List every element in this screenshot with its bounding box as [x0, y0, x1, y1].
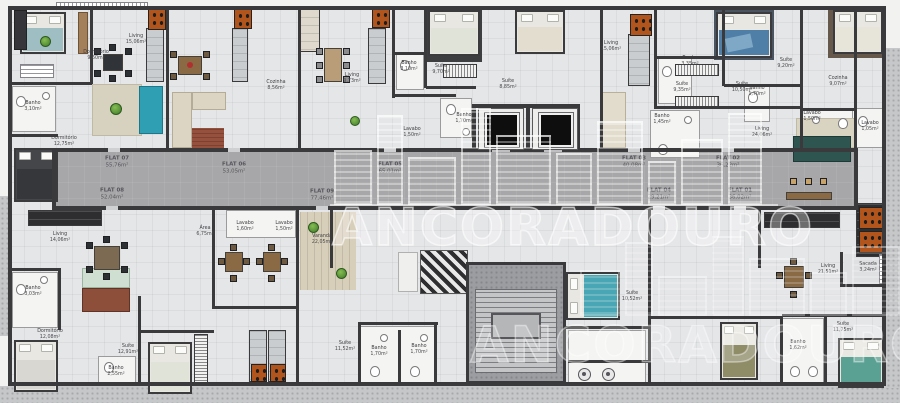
wall [650, 316, 782, 319]
room-label: Suíte8,85m² [499, 79, 516, 91]
dining-set [776, 258, 812, 298]
wall [722, 10, 725, 86]
door-opening [384, 148, 396, 152]
bed-teal-green [838, 338, 884, 388]
room-label: Suíte9,70m² [432, 64, 449, 76]
wall [840, 284, 886, 287]
room-label: Living14,06m² [50, 232, 70, 244]
flat-label: FLAT 0852,04m² [100, 187, 124, 201]
sink-icon [42, 92, 50, 100]
room-label: Banho1,70m² [748, 86, 765, 98]
dining-set [84, 236, 130, 280]
bed [428, 10, 480, 56]
wall [824, 316, 827, 384]
room-label: Lavabo1,50m² [803, 111, 820, 123]
wall [296, 210, 299, 384]
room-label: Lavabo1,05m² [861, 121, 878, 133]
sofa-beige [172, 92, 192, 148]
sink-icon [462, 128, 470, 136]
door-opening [228, 148, 240, 152]
room-label: Banho1,70m² [455, 113, 472, 125]
grille [20, 64, 54, 78]
flat-label: FLAT 0340,08m² [622, 155, 646, 169]
room-label: Dormitório9,60m² [83, 50, 109, 62]
flat-label: FLAT 0977,46m² [310, 188, 334, 202]
wardrobe [78, 12, 88, 54]
dining-set [786, 176, 834, 202]
sink-icon [380, 334, 388, 342]
room-label: Living9,73m² [343, 73, 360, 85]
cooktop-icon [148, 8, 166, 30]
wall [758, 210, 761, 268]
flat-label: FLAT 0653,05m² [222, 161, 246, 175]
bed [833, 10, 883, 54]
sidewalk [886, 48, 900, 388]
washer-icon [602, 368, 615, 381]
floor-plan: FLAT 0755,76m² FLAT 0653,05m² FLAT 0565,… [0, 0, 900, 403]
sofa-beige [192, 92, 226, 110]
wall [780, 316, 783, 384]
elevator [532, 108, 578, 150]
cooktop-icon [372, 8, 390, 28]
wall [138, 296, 141, 384]
kitchen-counter [28, 210, 102, 226]
elevator-shaft-wall [472, 104, 476, 150]
washer-icon [578, 368, 591, 381]
sidewalk [0, 196, 8, 336]
room-label: Living15,06m² [126, 34, 146, 46]
plant-icon [110, 103, 122, 115]
room-label: Suíte12,91m² [118, 344, 138, 356]
wall [566, 326, 650, 329]
wall [8, 6, 12, 386]
door-opening [106, 206, 118, 210]
wall [648, 210, 651, 320]
plant-icon [308, 222, 319, 233]
room-label: Banho3,10m² [400, 61, 417, 73]
wall [12, 268, 61, 271]
wall [398, 330, 401, 384]
wall [854, 148, 858, 210]
room-label: Banho3,10m² [24, 101, 41, 113]
wall [212, 210, 215, 308]
room-label: Suíte9,20m² [777, 58, 794, 70]
wall [8, 6, 886, 10]
wall [52, 148, 858, 152]
wall [58, 268, 61, 330]
staircase [466, 262, 566, 384]
toilet-icon [410, 366, 420, 377]
wall [800, 10, 803, 150]
closet [194, 334, 208, 384]
sink-icon [40, 276, 48, 284]
toilet-icon [838, 118, 848, 129]
room-label: Lavabo1,60m² [236, 221, 253, 233]
kitchen-counter [146, 28, 164, 82]
dining-set [168, 46, 212, 86]
door-opening [316, 206, 328, 210]
door-opening [108, 148, 120, 152]
wall [854, 10, 857, 150]
bed [515, 10, 565, 54]
cooktop-icon [630, 14, 652, 36]
room-label: Lavabo1,50m² [403, 127, 420, 139]
toilet-icon [808, 366, 818, 377]
room-label: Banho1,45m² [653, 114, 670, 126]
room-label: Banho1,70m² [370, 346, 387, 358]
wall [654, 10, 657, 109]
elevator [478, 108, 524, 150]
room-label: Cozinha9,07m² [828, 76, 847, 88]
bathroom [12, 272, 58, 328]
elevator-shaft-wall [526, 104, 530, 150]
plant-icon [40, 36, 51, 47]
room-label: Banho1,62m² [789, 340, 806, 352]
wall [140, 330, 214, 333]
wall [656, 106, 802, 109]
door-opening [628, 148, 640, 152]
sofa-white [398, 252, 418, 292]
flat-label: FLAT 0236,22m² [716, 155, 740, 169]
toilet-icon [790, 366, 800, 377]
room-label: Living15,06m² [601, 41, 621, 53]
flat-label: FLAT 0136,02m² [728, 187, 752, 201]
sink-icon [684, 116, 692, 124]
wall [298, 10, 301, 150]
sofa-teal [139, 86, 163, 134]
wall [600, 10, 603, 150]
room-label: Dormitório12,08m² [37, 329, 63, 341]
door-opening [653, 206, 665, 210]
flat-label: FLAT 0565,01m² [378, 161, 402, 175]
toilet-icon [662, 66, 672, 77]
wall [394, 94, 456, 97]
door-opening [722, 148, 734, 152]
room-label: Suíte11,75m² [833, 322, 853, 334]
sofa-cream [600, 92, 626, 148]
flat-label: FLAT 0429,21m² [647, 187, 671, 201]
wall [434, 324, 437, 384]
room-label: Banho2,55m² [107, 366, 124, 378]
room-label: Banho3,35m² [681, 56, 698, 68]
room-label: Suíte9,35m² [673, 82, 690, 94]
wall [52, 148, 56, 210]
cooktop-icon [270, 364, 286, 382]
wall [358, 324, 361, 384]
flat-label: FLAT 0755,76m² [105, 155, 129, 169]
kitchen-counter [232, 28, 248, 82]
kitchen-counter [764, 212, 840, 228]
bed-teal [566, 272, 620, 320]
room-label: Banho1,70m² [410, 344, 427, 356]
rug-chevron [420, 250, 468, 294]
dining-set [256, 244, 288, 282]
room-label: Banho3,03m² [24, 286, 41, 298]
wall [166, 10, 169, 150]
room-label: Cozinha8,56m² [266, 80, 285, 92]
room-label: Varanda22,05m² [312, 234, 332, 246]
wall [840, 252, 843, 286]
plant-icon [350, 116, 360, 126]
room-label: Suíte11,52m² [335, 341, 355, 353]
bed [148, 342, 192, 394]
sofa-mint-base [82, 288, 130, 312]
wall [782, 314, 884, 317]
wall [568, 360, 648, 363]
wall [212, 306, 298, 309]
stair-landing [491, 313, 541, 339]
dining-set [218, 244, 250, 282]
room-label: Sacada3,24m² [859, 262, 877, 274]
room-label: Dormitório12,75m² [51, 136, 77, 148]
wall [424, 10, 427, 88]
sidewalk [0, 386, 900, 403]
wall [12, 82, 92, 85]
wall [426, 86, 476, 89]
plant-icon [336, 268, 347, 279]
room-label: Lavabo1,50m² [275, 221, 292, 233]
toilet-icon [370, 366, 380, 377]
kitchen-counter [368, 28, 386, 84]
wall [358, 322, 438, 325]
bed-olive [720, 322, 758, 380]
door-opening [734, 206, 746, 210]
room-label: Área6,75m² [196, 226, 213, 238]
wall [882, 6, 886, 386]
sink-icon [420, 334, 428, 342]
cooktop-icon [251, 364, 267, 382]
cooktop-icon [234, 9, 252, 29]
wall [90, 10, 93, 84]
room-label: Living21,51m² [818, 264, 838, 276]
room-label: Suíte10,52m² [622, 291, 642, 303]
corner-sofa-dark [14, 10, 27, 50]
room-label: Living24,06m² [752, 127, 772, 139]
wall [394, 52, 426, 55]
kitchen-counter [628, 34, 650, 86]
